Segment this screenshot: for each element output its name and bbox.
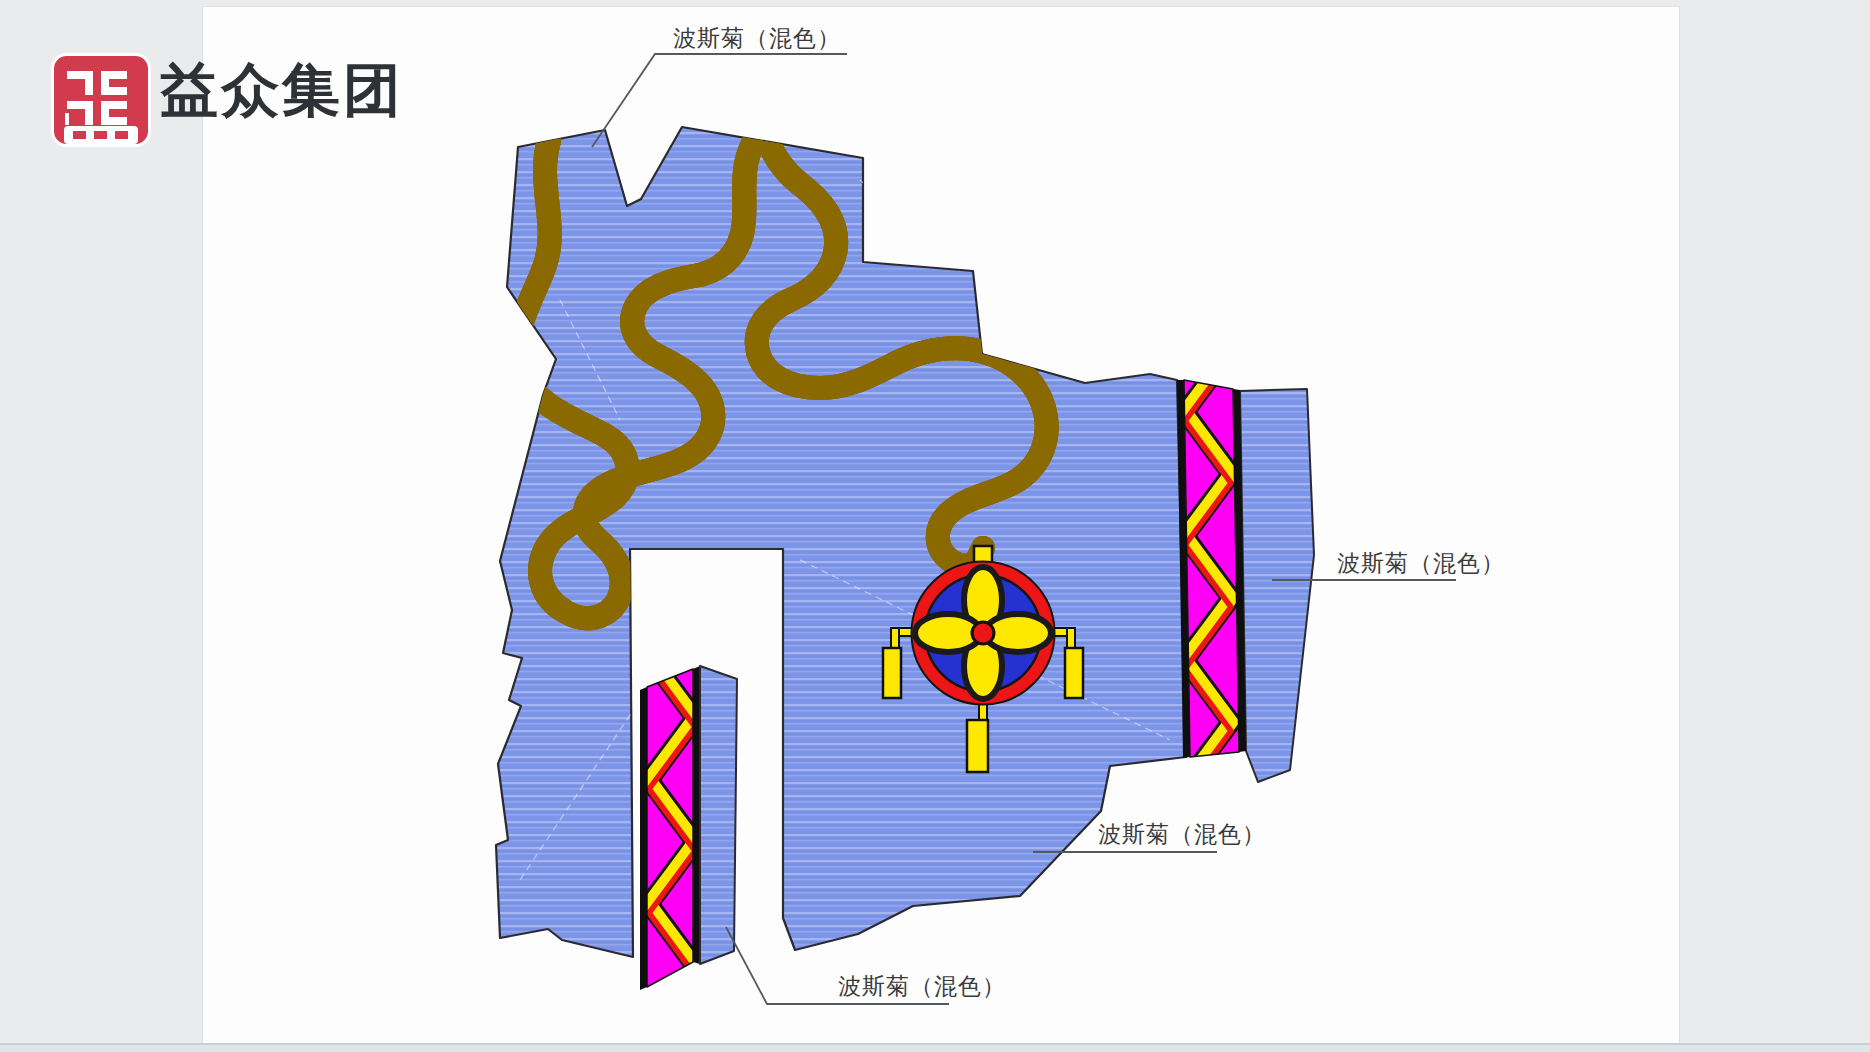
left-zigzag-band [640,666,737,990]
label-cosmos-middle: 波斯菊（混色） [1098,819,1266,850]
company-logo-icon [51,53,151,147]
label-cosmos-right: 波斯菊（混色） [1337,548,1505,579]
right-zigzag-band [1177,380,1314,782]
page: 波斯菊（混色） 波斯菊（混色） 波斯菊（混色） 波斯菊（混色） [0,0,1870,1052]
bottom-bar [0,1043,1870,1052]
company-name: 益众集团 [160,52,404,130]
label-cosmos-bottom: 波斯菊（混色） [838,971,1006,1002]
label-cosmos-top: 波斯菊（混色） [673,23,841,54]
carpet-design-drawing [0,0,1870,1052]
